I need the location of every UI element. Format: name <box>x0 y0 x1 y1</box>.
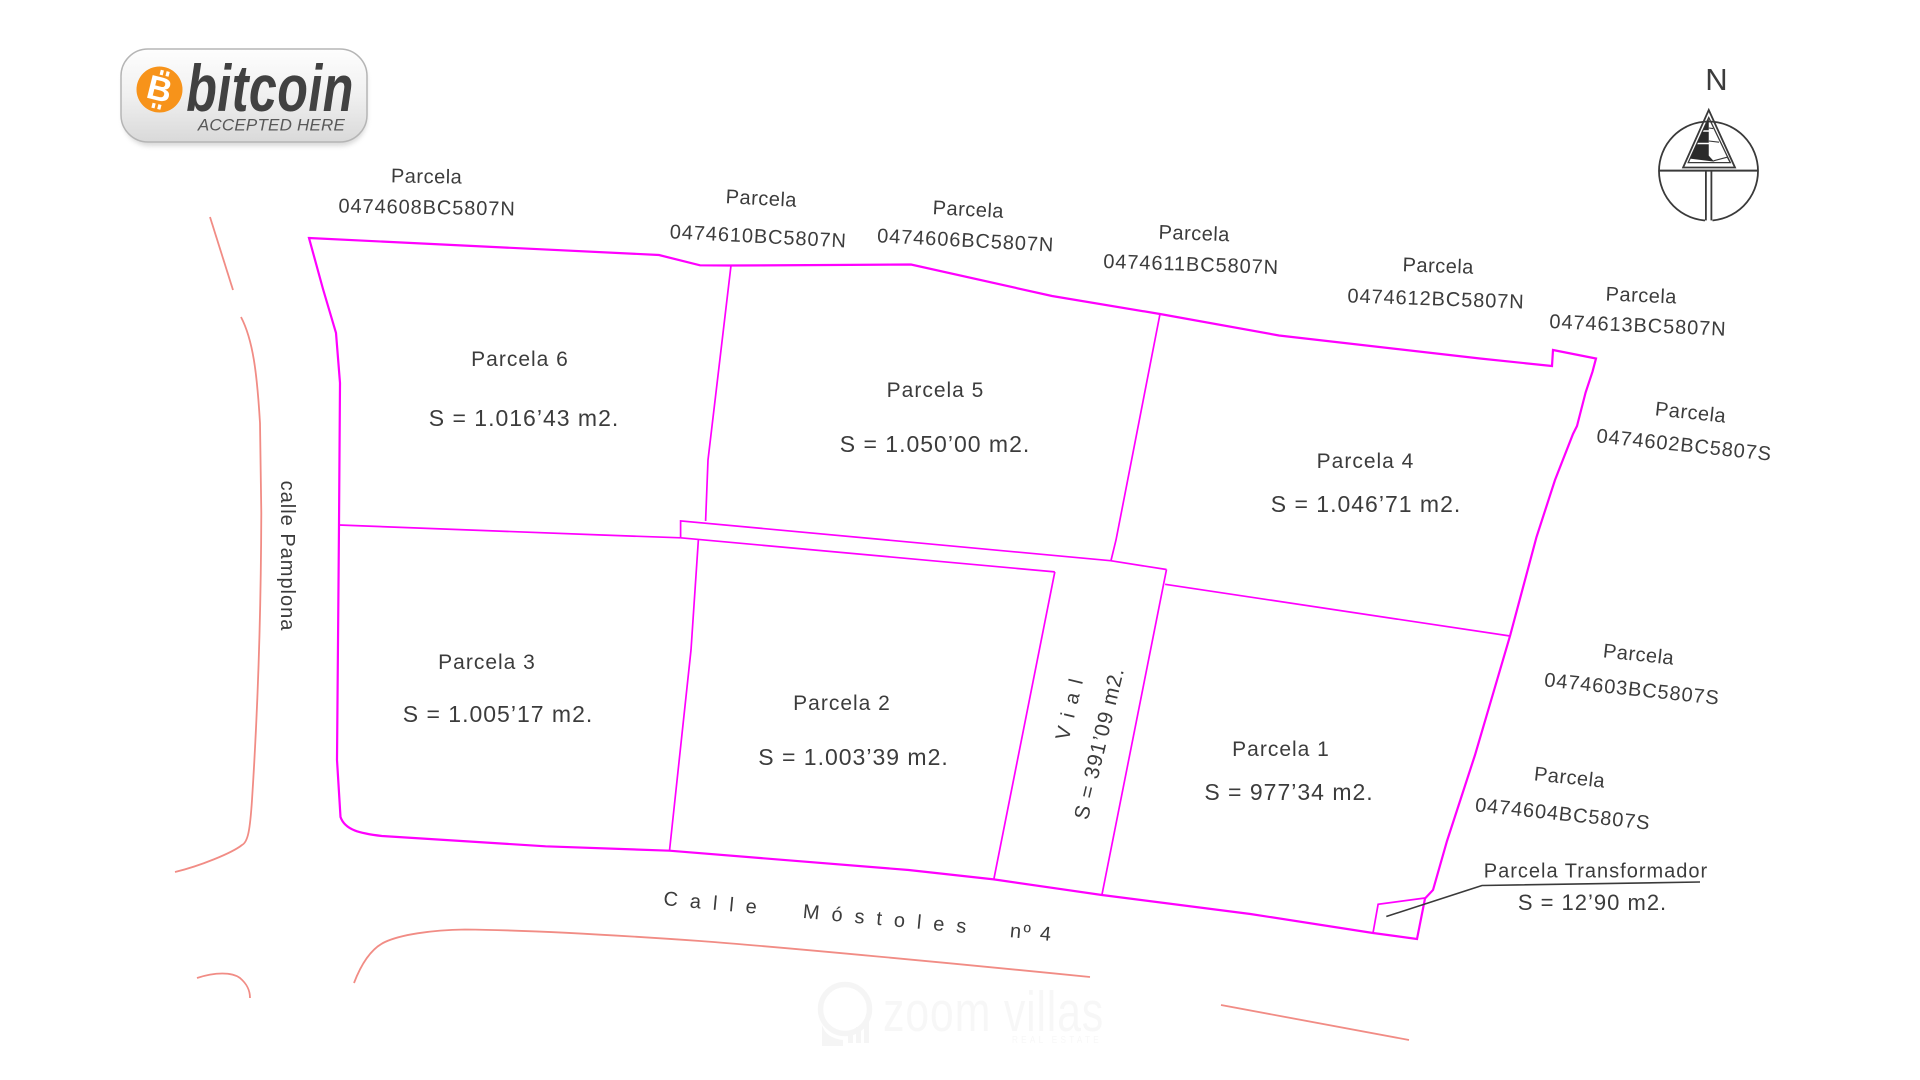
svg-text:S = 1.005’17 m2.: S = 1.005’17 m2. <box>403 701 594 727</box>
svg-text:nº 4: nº 4 <box>1009 920 1054 946</box>
svg-text:S = 1.003’39 m2.: S = 1.003’39 m2. <box>758 744 949 770</box>
svg-text:S = 12’90 m2.: S = 12’90 m2. <box>1518 890 1667 915</box>
svg-text:S = 1.046’71 m2.: S = 1.046’71 m2. <box>1271 491 1462 517</box>
svg-text:Parcela 2: Parcela 2 <box>793 692 891 715</box>
svg-text:Parcela 4: Parcela 4 <box>1317 450 1415 473</box>
svg-text:Parcela 3: Parcela 3 <box>438 651 536 674</box>
svg-text:S = 1.050’00 m2.: S = 1.050’00 m2. <box>840 431 1031 457</box>
svg-text:ACCEPTED HERE: ACCEPTED HERE <box>197 116 346 135</box>
svg-text:Parcela: Parcela <box>932 197 1005 223</box>
svg-text:REAL ESTATE: REAL ESTATE <box>1012 1035 1102 1046</box>
svg-text:0474608BC5807N: 0474608BC5807N <box>338 195 516 220</box>
svg-text:S = 1.016’43 m2.: S = 1.016’43 m2. <box>429 405 620 431</box>
svg-text:S = 977’34 m2.: S = 977’34 m2. <box>1204 779 1373 805</box>
svg-text:Parcela: Parcela <box>1158 222 1230 246</box>
svg-text:Parcela: Parcela <box>1605 283 1678 308</box>
svg-text:Parcela 6: Parcela 6 <box>471 348 569 371</box>
svg-text:calle Pamplona: calle Pamplona <box>276 481 298 632</box>
svg-text:Parcela: Parcela <box>1402 254 1474 278</box>
svg-text:Parcela Transformador: Parcela Transformador <box>1484 861 1708 883</box>
svg-text:Parcela 1: Parcela 1 <box>1232 738 1330 761</box>
svg-text:N: N <box>1705 62 1727 97</box>
svg-text:Parcela 5: Parcela 5 <box>887 379 985 402</box>
svg-text:Parcela: Parcela <box>391 165 463 188</box>
svg-text:Parcela: Parcela <box>725 186 798 212</box>
